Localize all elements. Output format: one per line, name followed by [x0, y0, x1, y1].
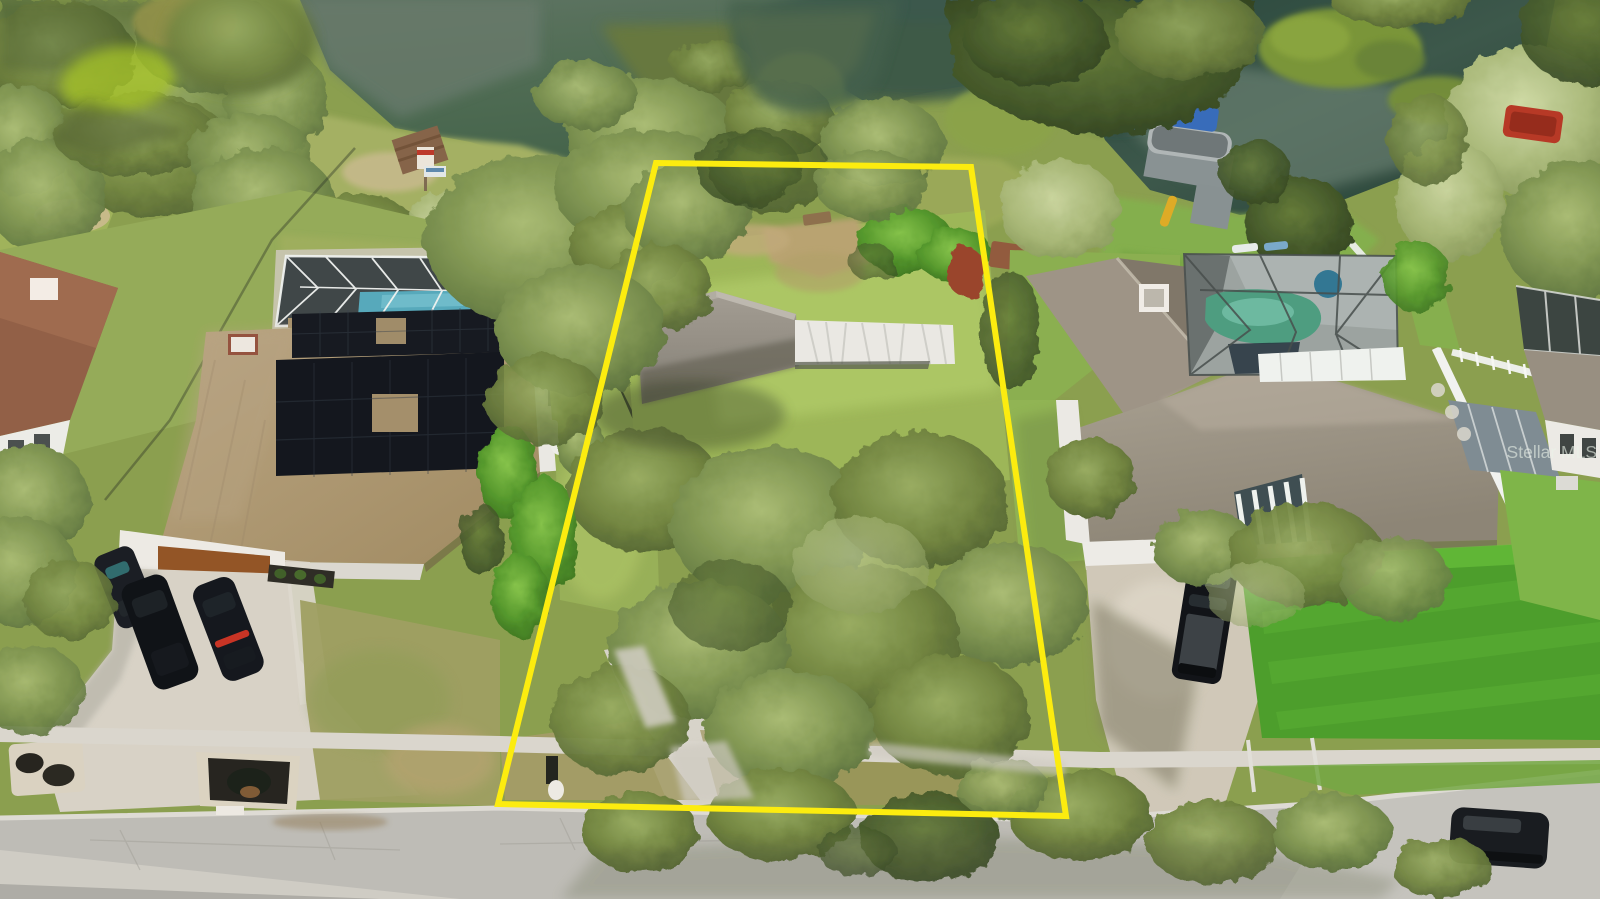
svg-text:Stellar MLS: Stellar MLS	[1507, 442, 1597, 462]
